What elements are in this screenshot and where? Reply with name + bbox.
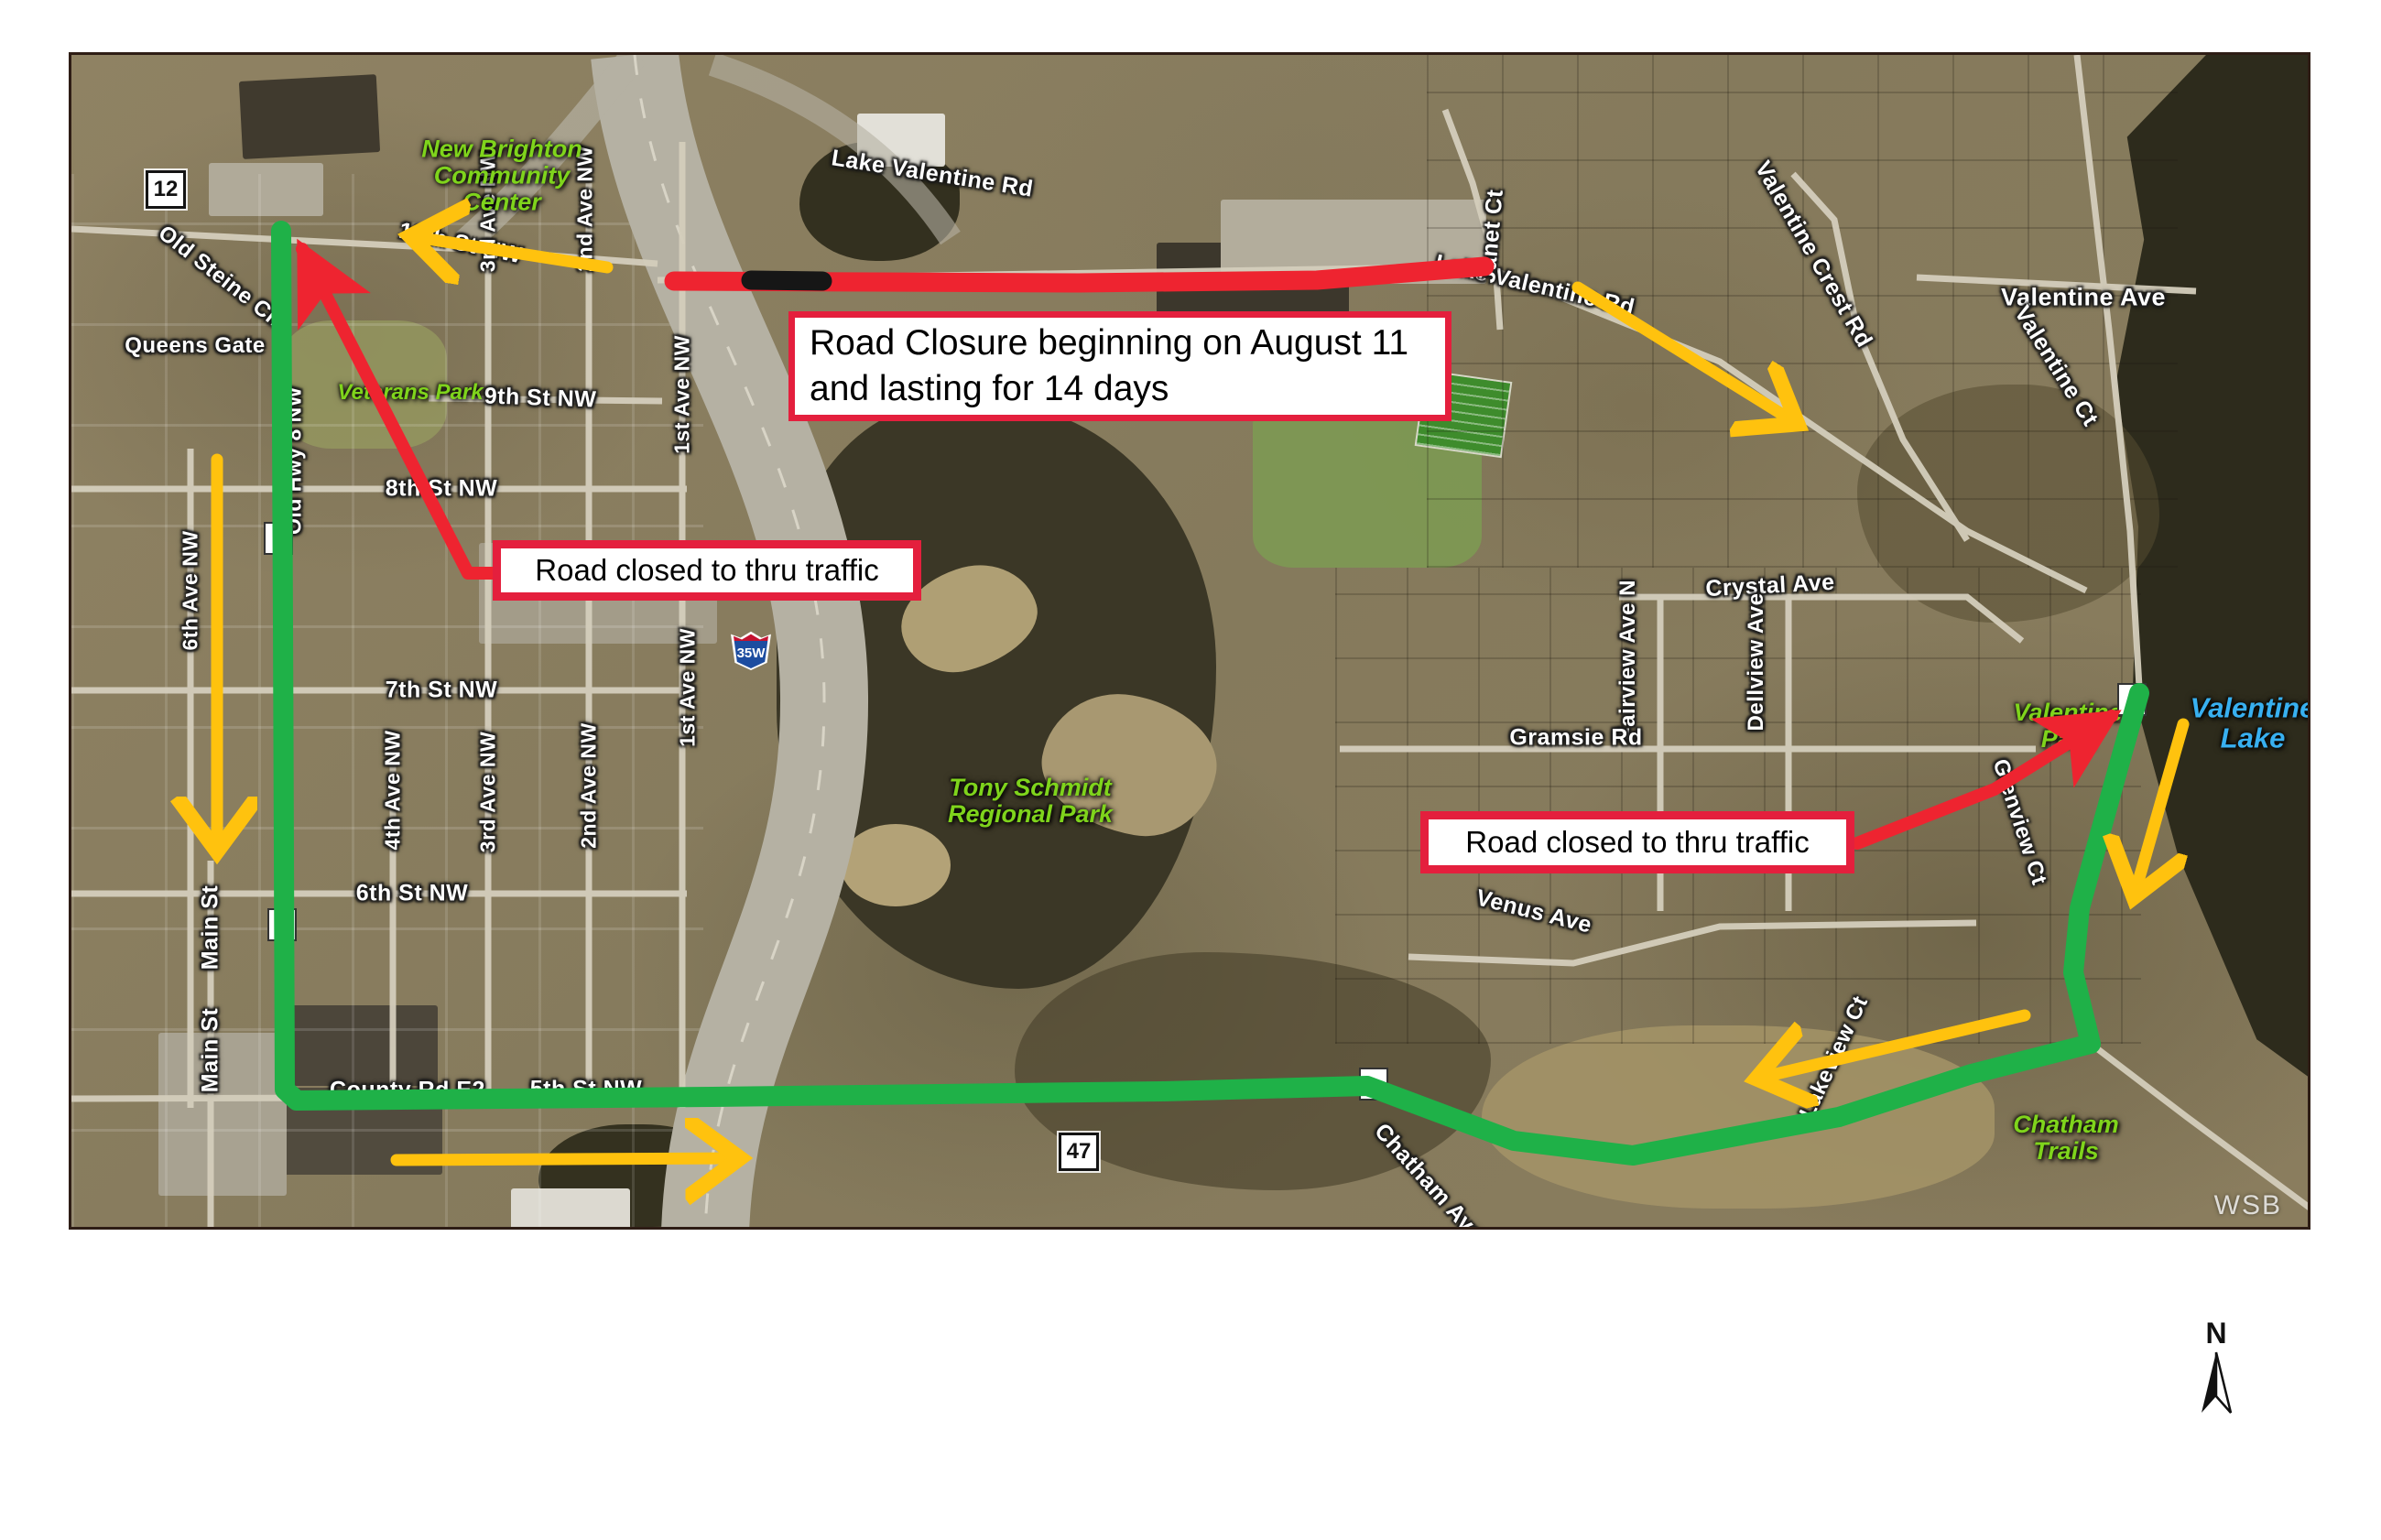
county-12-shield-icon: 12: [146, 170, 186, 209]
street-label-1st-ave-nw: 1st Ave NW: [676, 628, 701, 747]
place-label-tony-schmidt-regional-park: Tony SchmidtRegional Park: [948, 775, 1113, 828]
aerial-map: 10th St NW9th St NW8th St NW7th St NW6th…: [69, 52, 2310, 1230]
place-label-line: Valentine: [2013, 700, 2122, 726]
place-label-line: Lake: [2191, 723, 2310, 754]
route-shield-partial-2-icon: [267, 908, 297, 941]
street-label-queens-gate: Queens Gate: [125, 333, 266, 359]
closure-notice-box: Road Closure beginning on August 11 and …: [788, 311, 1451, 421]
wsb-watermark: WSB: [2214, 1190, 2282, 1221]
place-label-new-brighton-community-center: New BrightonCommunityCenter: [421, 136, 582, 215]
street-label-6th-ave-nw: 6th Ave NW: [179, 530, 203, 650]
street-label-8th-st-nw: 8th St NW: [386, 476, 498, 503]
street-label-dellview-ave: Dellview Ave: [1744, 593, 1769, 732]
north-arrow: N: [2194, 1317, 2238, 1417]
road-closed-box-left: Road closed to thru traffic: [493, 540, 921, 601]
street-label-4th-ave-nw: 4th Ave NW: [381, 730, 406, 850]
road-closed-right-text: Road closed to thru traffic: [1465, 825, 1809, 860]
place-label-line: Park: [2013, 726, 2122, 753]
place-label-line: Chatham: [2013, 1112, 2119, 1138]
street-label-gramsie-rd: Gramsie Rd: [1509, 725, 1642, 752]
route-shield-partial-3-icon: [1359, 1068, 1388, 1101]
street-label-3rd-ave-nw: 3rd Ave NW: [476, 732, 501, 852]
page: { "map": { "watermark": "WSB" }, "compas…: [0, 0, 2381, 1540]
street-label-main-st: Main St: [198, 885, 224, 970]
place-label-line: Regional Park: [948, 801, 1113, 828]
place-label-line: Veterans Park: [337, 381, 483, 405]
place-label-veterans-park: Veterans Park: [337, 381, 483, 405]
street-label-fairview-ave-n: Fairview Ave N: [1615, 580, 1641, 741]
road-closed-left-text: Road closed to thru traffic: [535, 553, 878, 588]
closure-notice-line1: Road Closure beginning on August 11: [810, 320, 1430, 366]
street-label-2nd-ave-nw: 2nd Ave NW: [577, 722, 602, 848]
street-label-old-hwy-8-nw: Old Hwy 8 NW: [282, 386, 307, 535]
route-shield-partial-1-icon: [264, 522, 293, 555]
north-label: N: [2194, 1317, 2238, 1350]
place-label-line: Valentine: [2191, 693, 2310, 723]
road-closed-box-right: Road closed to thru traffic: [1420, 811, 1854, 873]
street-label-5th-st-nw: 5th St NW: [530, 1077, 643, 1103]
route-47-shield-icon: 47: [1059, 1133, 1099, 1171]
route-shield-partial-4-icon: [2117, 683, 2147, 716]
place-label-line: Trails: [2013, 1138, 2119, 1165]
closure-notice-line2: and lasting for 14 days: [810, 366, 1430, 412]
place-label-line: Community: [421, 162, 582, 189]
street-label-1st-ave-nw: 1st Ave NW: [670, 335, 695, 454]
place-label-valentine-lake: ValentineLake: [2191, 693, 2310, 754]
street-label-6th-st-nw: 6th St NW: [356, 881, 469, 907]
street-label-7th-st-nw: 7th St NW: [386, 678, 498, 704]
place-label-chatham-trails: ChathamTrails: [2013, 1112, 2119, 1165]
street-label-county-rd-e2: County Rd E2: [330, 1078, 485, 1104]
place-label-line: New Brighton: [421, 136, 582, 162]
north-arrow-icon: [2194, 1350, 2238, 1418]
street-label-main-st: Main St: [198, 1008, 224, 1092]
place-label-valentine-park: ValentinePark: [2013, 700, 2122, 753]
place-label-line: Tony Schmidt: [948, 775, 1113, 801]
street-label-9th-st-nw: 9th St NW: [484, 383, 596, 413]
place-label-line: Center: [421, 190, 582, 216]
